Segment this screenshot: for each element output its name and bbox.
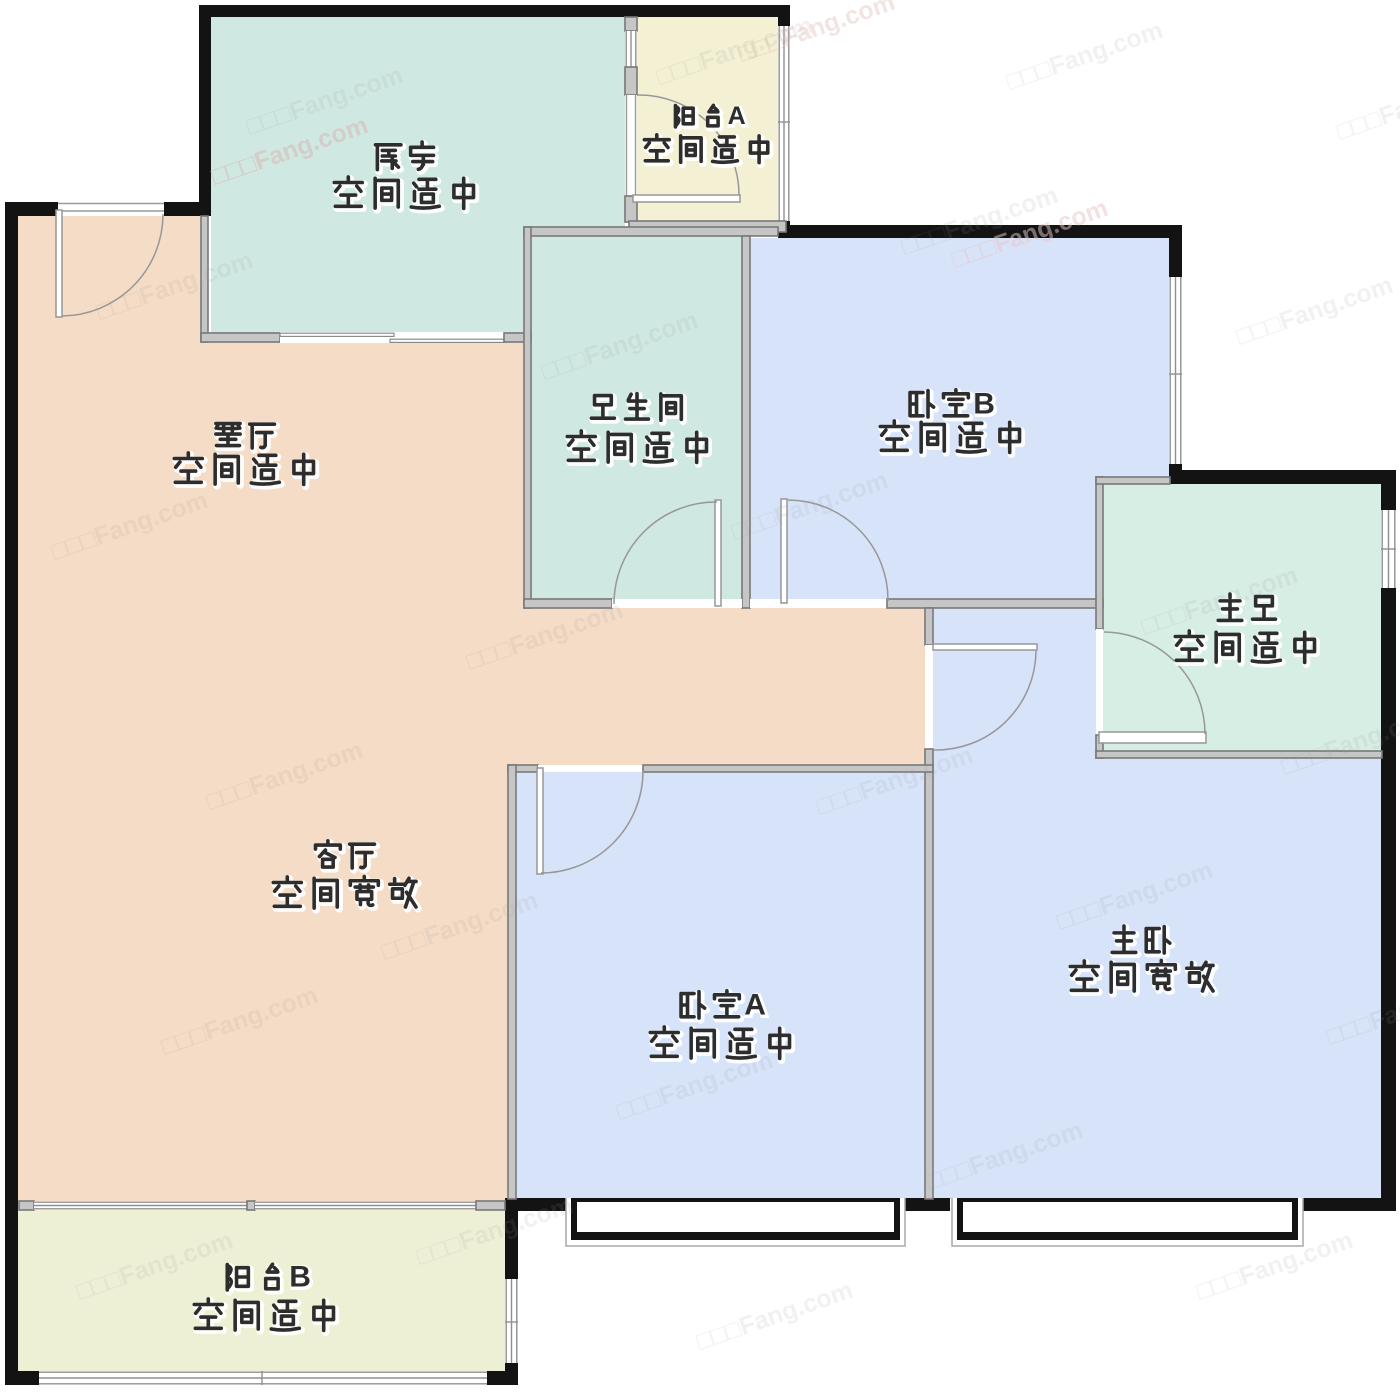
svg-text:A: A <box>728 102 746 130</box>
svg-text:B: B <box>973 388 995 421</box>
svg-text:A: A <box>744 989 766 1022</box>
svg-text:B: B <box>289 1261 311 1294</box>
